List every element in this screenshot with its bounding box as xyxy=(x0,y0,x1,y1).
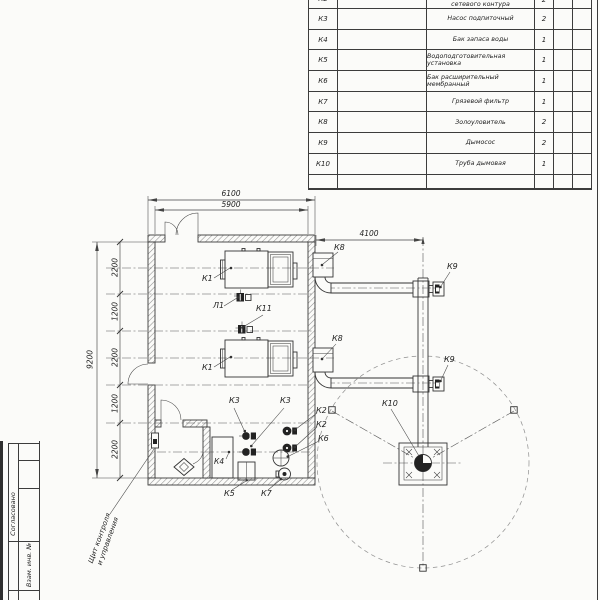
row-qty: 2 xyxy=(542,0,546,4)
row-name: Бак запаса воды xyxy=(427,30,535,50)
row-qty: 2 xyxy=(535,9,554,29)
row-name: Дымосос xyxy=(427,133,535,153)
callout-k1-bottom: К1 xyxy=(202,363,213,372)
dim-1200-b: 1200 xyxy=(111,379,120,429)
valve-k11 xyxy=(236,322,253,334)
dim-6100: 6100 xyxy=(206,189,256,198)
smoke-exhauster-k9-top xyxy=(429,282,444,296)
table-row: К5 Водоподготовительная установка 1 xyxy=(309,50,591,71)
title-block-vzam-inv: Взам. инв. № xyxy=(25,530,33,600)
callout-k8-top: К8 xyxy=(334,243,345,252)
callout-k11: К11 xyxy=(256,304,272,313)
row-name: сетевого контура xyxy=(427,0,535,8)
row-pos: К7 xyxy=(309,92,338,112)
callout-k10: К10 xyxy=(382,399,398,408)
row-pos: К9 xyxy=(309,133,338,153)
valve-l1 xyxy=(234,290,251,302)
feed-pump-k3-upper xyxy=(239,432,256,440)
table-row: К7 Грязевой фильтр 1 xyxy=(309,92,591,113)
row-qty: 1 xyxy=(535,50,554,70)
boiler-k1-bottom xyxy=(221,338,298,378)
row-pos: К4 xyxy=(309,30,338,50)
feed-pump-k3-lower xyxy=(239,448,256,456)
callout-k3-left: К3 xyxy=(229,396,240,405)
row-qty: 1 xyxy=(535,71,554,91)
water-treatment-k5 xyxy=(238,462,255,480)
callout-k7: К7 xyxy=(261,489,272,498)
table-row: К9 Дымосос 2 xyxy=(309,133,591,154)
callout-k6: К6 xyxy=(318,434,329,443)
row-name: Золоуловитель xyxy=(427,112,535,132)
chimney-k10 xyxy=(415,455,432,472)
dim-1200-a: 1200 xyxy=(111,287,120,337)
row-name: Водоподготовительная установка xyxy=(427,50,535,70)
row-pos: К8 xyxy=(309,112,338,132)
table-row: К2 сетевого контура 2 xyxy=(309,0,591,9)
table-row: К10 Труба дымовая 1 xyxy=(309,154,591,175)
control-panel xyxy=(152,433,159,448)
callout-k8-bottom: К8 xyxy=(332,334,343,343)
callout-l1: Л1 xyxy=(213,301,224,310)
ash-collector-k8-bottom xyxy=(313,348,333,372)
dim-5900: 5900 xyxy=(206,200,256,209)
row-name: Труба дымовая xyxy=(427,154,535,174)
doors xyxy=(128,213,198,420)
row-pos: К3 xyxy=(309,9,338,29)
callout-k9-bottom: К9 xyxy=(444,355,455,364)
title-block-soglasovano: Согласовано xyxy=(9,479,17,549)
callout-k2-lower: К2 xyxy=(316,420,327,429)
table-row: К3 Насос подпиточный 2 xyxy=(309,9,591,30)
table-row: К6 Бак расширительный мембранный 1 xyxy=(309,71,591,92)
dim-2200-c: 2200 xyxy=(111,425,120,475)
floor-drain xyxy=(174,452,203,476)
smoke-exhauster-k9-bottom xyxy=(429,377,444,391)
row-pos: К6 xyxy=(309,71,338,91)
table-row: К8 Золоуловитель 2 xyxy=(309,112,591,133)
chimney-riser xyxy=(418,237,428,455)
row-name: Бак расширительный мембранный xyxy=(427,71,535,91)
sheet-edge xyxy=(0,441,3,600)
row-name: Грязевой фильтр xyxy=(427,92,535,112)
row-qty: 1 xyxy=(535,154,554,174)
dim-2200-a: 2200 xyxy=(111,243,120,293)
row-qty: 2 xyxy=(535,112,554,132)
row-qty: 2 xyxy=(535,133,554,153)
dim-9200: 9200 xyxy=(86,335,95,385)
callout-k5: К5 xyxy=(224,489,235,498)
row-qty: 1 xyxy=(535,30,554,50)
row-pos: К5 xyxy=(309,50,338,70)
row-pos: К10 xyxy=(309,154,338,174)
dim-2200-b: 2200 xyxy=(111,333,120,383)
row-pos: К2 xyxy=(318,0,327,3)
drawing-sheet: 6100 5900 4100 9200 2200 1200 2200 1200 … xyxy=(0,0,600,600)
callout-k1-top: К1 xyxy=(202,274,213,283)
callout-k9-top: К9 xyxy=(447,262,458,271)
callout-k4: К4 xyxy=(214,457,224,466)
table-row: К4 Бак запаса воды 1 xyxy=(309,30,591,51)
sheet-frame-right xyxy=(597,0,599,600)
table-row-empty xyxy=(309,175,591,189)
dim-4100: 4100 xyxy=(344,229,394,238)
row-name: Насос подпиточный xyxy=(427,9,535,29)
callout-k2-upper: К2 xyxy=(316,406,327,415)
expansion-tank-k6 xyxy=(273,450,289,466)
row-qty: 1 xyxy=(535,92,554,112)
equipment-table: К2 сетевого контура 2 К3 Насос подпиточн… xyxy=(308,0,592,190)
callout-k3-right: К3 xyxy=(280,396,291,405)
